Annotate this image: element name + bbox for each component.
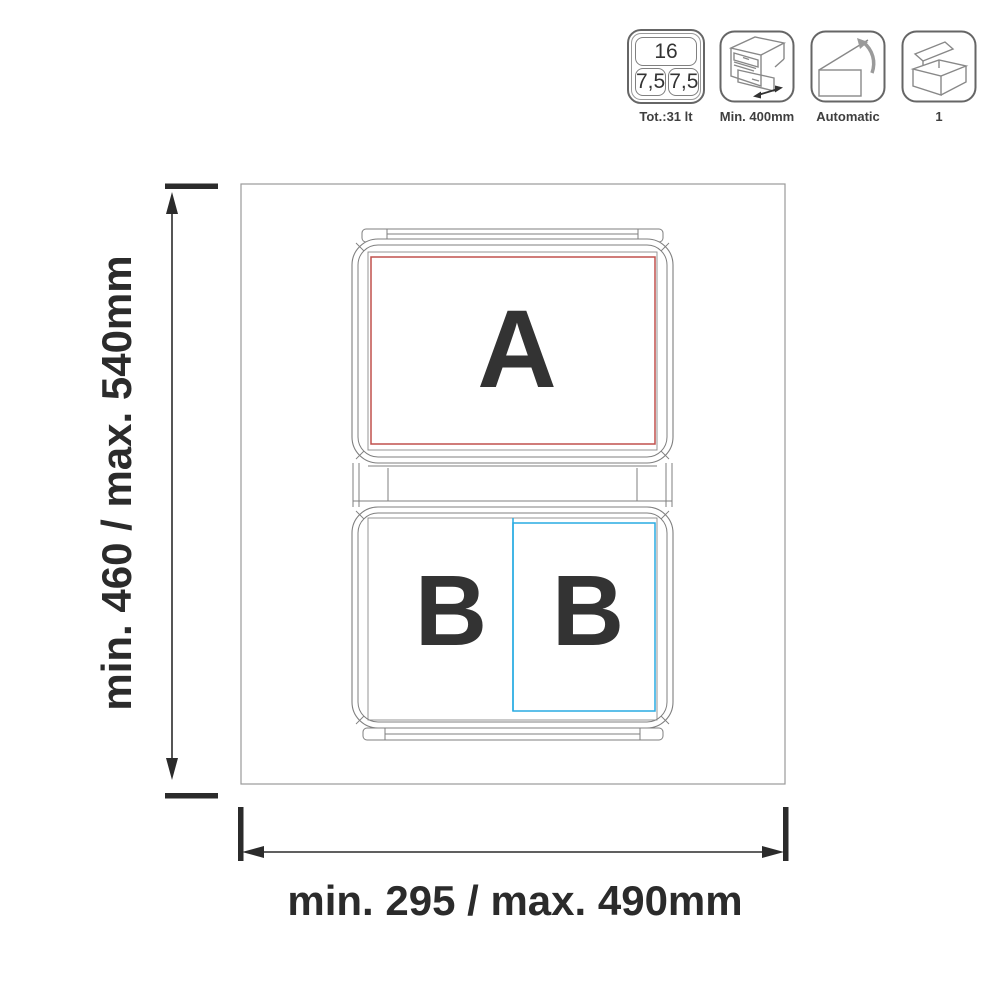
bin-dimension-drawing [0, 0, 1000, 1000]
cabinet-icon-label: Min. 400mm [720, 110, 794, 123]
cabinet-icon-group: Min. 400mm [718, 29, 796, 123]
capacity-icon-label: Tot.:31 lt [639, 110, 692, 123]
capacity-top-value: 16 [635, 37, 697, 66]
height-dimension-arrow [165, 184, 218, 799]
automatic-icon-label: Automatic [816, 110, 880, 123]
bin-b-bottom-lip [363, 728, 663, 740]
open-box-icon [900, 29, 978, 104]
height-dimension-label: min. 460 / max. 540mm [96, 255, 138, 710]
capacity-left-value: 7,5 [635, 68, 666, 96]
spec-icon-strip: 16 7,5 7,5 Tot.:31 lt [627, 29, 978, 123]
spec-diagram-page: A B B min. 460 / max. 540mm min. 295 / m… [0, 0, 1000, 1000]
bin-b-right-label: B [552, 561, 624, 661]
capacity-icon: 16 7,5 7,5 [627, 29, 705, 104]
package-icon-label: 1 [935, 110, 942, 123]
width-dimension-arrow [238, 807, 789, 861]
package-icon-group: 1 [900, 29, 978, 123]
width-dimension-label: min. 295 / max. 490mm [287, 880, 742, 922]
swing-arrow [857, 38, 874, 73]
capacity-right-value: 7,5 [668, 68, 699, 96]
bin-b-drawing [352, 507, 673, 728]
frame-connector [353, 463, 672, 507]
capacity-icon-group: 16 7,5 7,5 Tot.:31 lt [627, 29, 705, 123]
automatic-lid-icon [809, 29, 887, 104]
bin-b-left-label: B [415, 561, 487, 661]
bin-a-label: A [477, 295, 556, 405]
automatic-icon-group: Automatic [809, 29, 887, 123]
cabinet-drawer-icon [718, 29, 796, 104]
